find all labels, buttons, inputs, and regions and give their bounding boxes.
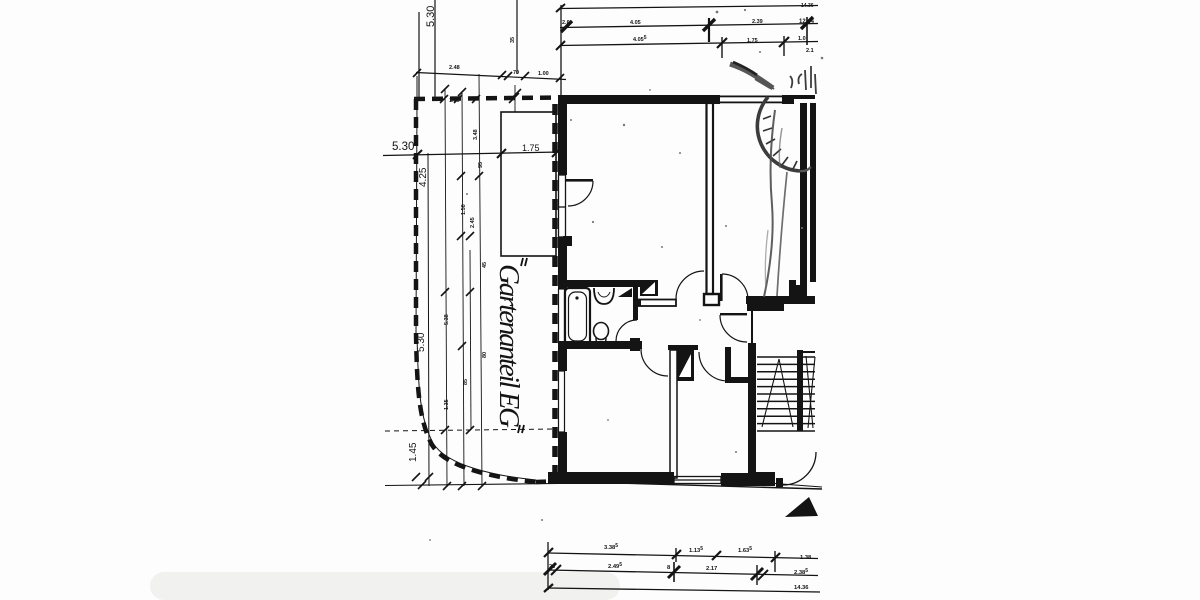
svg-text:12.44: 12.44	[799, 19, 815, 25]
svg-text:5.30: 5.30	[392, 141, 414, 153]
svg-text:80: 80	[482, 352, 488, 358]
svg-text:4.05: 4.05	[630, 20, 641, 26]
svg-text:70: 70	[513, 70, 519, 76]
svg-text:4.25: 4.25	[418, 167, 429, 187]
svg-text:35: 35	[510, 37, 516, 43]
svg-text:1.35: 1.35	[444, 399, 450, 410]
svg-text:2.495: 2.495	[608, 562, 622, 570]
svg-text:45: 45	[482, 262, 488, 268]
svg-text:1.00: 1.00	[538, 71, 549, 77]
svg-text:28: 28	[549, 564, 555, 570]
svg-text:85: 85	[463, 379, 469, 385]
svg-text:2.1: 2.1	[806, 48, 814, 54]
svg-text:1.75: 1.75	[747, 38, 758, 44]
svg-text:1.38: 1.38	[800, 555, 812, 561]
svg-text:14.36: 14.36	[801, 3, 814, 9]
svg-text:2.39: 2.39	[752, 19, 763, 25]
svg-text:2.17: 2.17	[706, 566, 717, 572]
svg-text:1.50: 1.50	[461, 204, 467, 215]
svg-text:1.635: 1.635	[738, 546, 752, 554]
svg-text:3.48: 3.48	[473, 129, 479, 140]
svg-text:14.36: 14.36	[794, 585, 809, 591]
svg-text:2.45: 2.45	[470, 217, 476, 228]
svg-text:95: 95	[478, 162, 484, 168]
svg-text:2.48: 2.48	[449, 65, 460, 71]
svg-text:2.6: 2.6	[562, 20, 570, 26]
svg-text:1.75: 1.75	[522, 143, 540, 153]
svg-text:8: 8	[667, 565, 671, 571]
svg-text:4.055: 4.055	[633, 35, 647, 43]
svg-text:5.30: 5.30	[425, 6, 437, 27]
svg-text:1.135: 1.135	[689, 546, 703, 554]
svg-text:5.38: 5.38	[444, 314, 450, 325]
svg-text:1.45: 1.45	[408, 442, 419, 462]
svg-text:1.0: 1.0	[798, 36, 806, 42]
svg-text:Gartenanteil EG: Gartenanteil EG	[493, 264, 525, 428]
svg-text:3.385: 3.385	[604, 543, 618, 551]
